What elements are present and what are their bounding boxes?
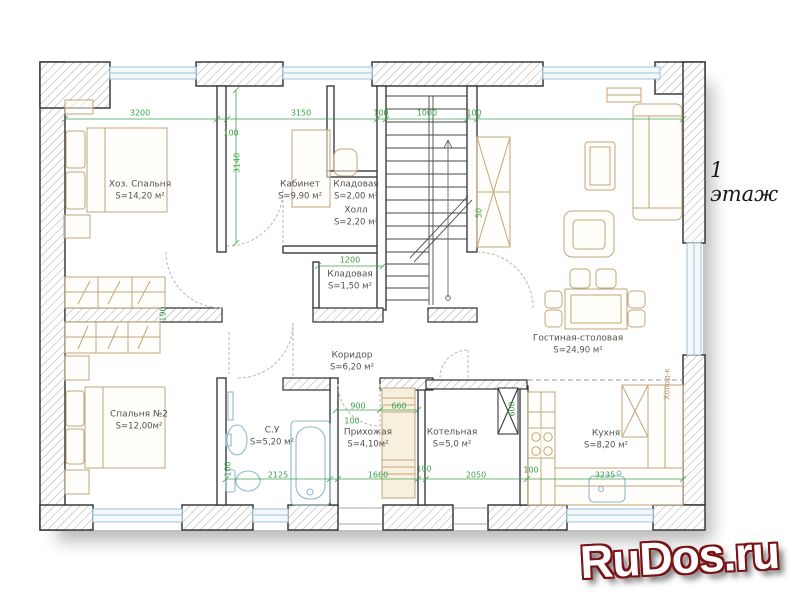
sofa xyxy=(633,104,682,220)
armchair xyxy=(564,211,614,257)
watermark: RuDos.ru xyxy=(579,525,781,589)
dim-top-100c: 100 xyxy=(466,109,481,118)
fridge-label: Холод-к xyxy=(663,368,672,400)
room-label-master-bedroom: Хоз. СпальняS=14,20 м² xyxy=(109,180,171,203)
tv-console xyxy=(607,88,641,102)
room-label-pantry-1: КладоваяS=2,00 м² xyxy=(333,180,379,203)
room-label-boiler-room: КотельнаяS=5,0 м² xyxy=(427,428,478,451)
room-label-entry: ПрихожаяS=4,10м² xyxy=(344,428,392,451)
dim-top-100b: 100 xyxy=(373,109,388,118)
floor-plan-drawing xyxy=(0,0,800,600)
bathtub xyxy=(291,421,330,505)
room-label-bedroom-2: Спальня №2S=12,00м² xyxy=(110,410,168,433)
dim-bottom-3235: 3235 xyxy=(595,471,615,480)
dim-corridor-900: 900 xyxy=(350,402,365,411)
room-label-hall: ХоллS=2,20 м² xyxy=(334,206,378,229)
room-label-office: КабинетS=9,90 м² xyxy=(278,180,322,203)
dim-boiler-600: 600 xyxy=(508,401,517,416)
floor-plan-page: Хоз. СпальняS=14,20 м² КабинетS=9,90 м² … xyxy=(0,0,800,600)
room-label-pantry-2: КладоваяS=1,50 м² xyxy=(327,270,373,293)
dim-bottom-2050: 2050 xyxy=(466,471,486,480)
dim-bedroom-wall-190: 190 xyxy=(159,306,168,321)
dim-bottom-100: 100 xyxy=(416,465,431,474)
staircase xyxy=(386,96,472,305)
coffee-table xyxy=(585,142,615,190)
office-chair xyxy=(334,149,357,176)
dim-bathroom-100: 100 xyxy=(224,461,233,476)
dim-top-100a: 100 xyxy=(223,129,238,138)
dim-bottom-2125: 2125 xyxy=(268,471,288,480)
stove xyxy=(528,428,555,458)
dim-top-3200: 3200 xyxy=(130,109,150,118)
dim-bottom-1660: 1660 xyxy=(368,471,388,480)
dim-cabinet-3140: 3140 xyxy=(233,153,242,173)
master-bed xyxy=(64,100,167,238)
dim-top-3150: 3150 xyxy=(291,109,311,118)
dim-corridor-100: 100 xyxy=(344,417,359,426)
bathroom-sink xyxy=(226,425,247,455)
living-wardrobe xyxy=(477,137,510,247)
floor-title: 1 этаж xyxy=(710,158,795,206)
master-wardrobe xyxy=(65,277,165,308)
room-label-kitchen: КухняS=8,20 м² xyxy=(584,429,628,452)
dim-boiler-100: 100 xyxy=(523,466,538,475)
dim-closet-660: 660 xyxy=(391,402,406,411)
dim-stair-50: 50 xyxy=(475,208,484,218)
room-label-bathroom: С.УS=5,20 м² xyxy=(250,426,294,449)
dim-pantry-1200: 1200 xyxy=(340,256,360,265)
towel-rail xyxy=(228,392,233,420)
bedroom2-wardrobe xyxy=(65,322,160,353)
dining-table xyxy=(565,289,627,329)
room-label-living-dining: Гостиная-столоваяS=24,90 м² xyxy=(533,334,623,357)
room-label-corridor: КоридорS=6,20 м² xyxy=(330,351,374,374)
dim-top-1000: 1000 xyxy=(417,109,437,118)
